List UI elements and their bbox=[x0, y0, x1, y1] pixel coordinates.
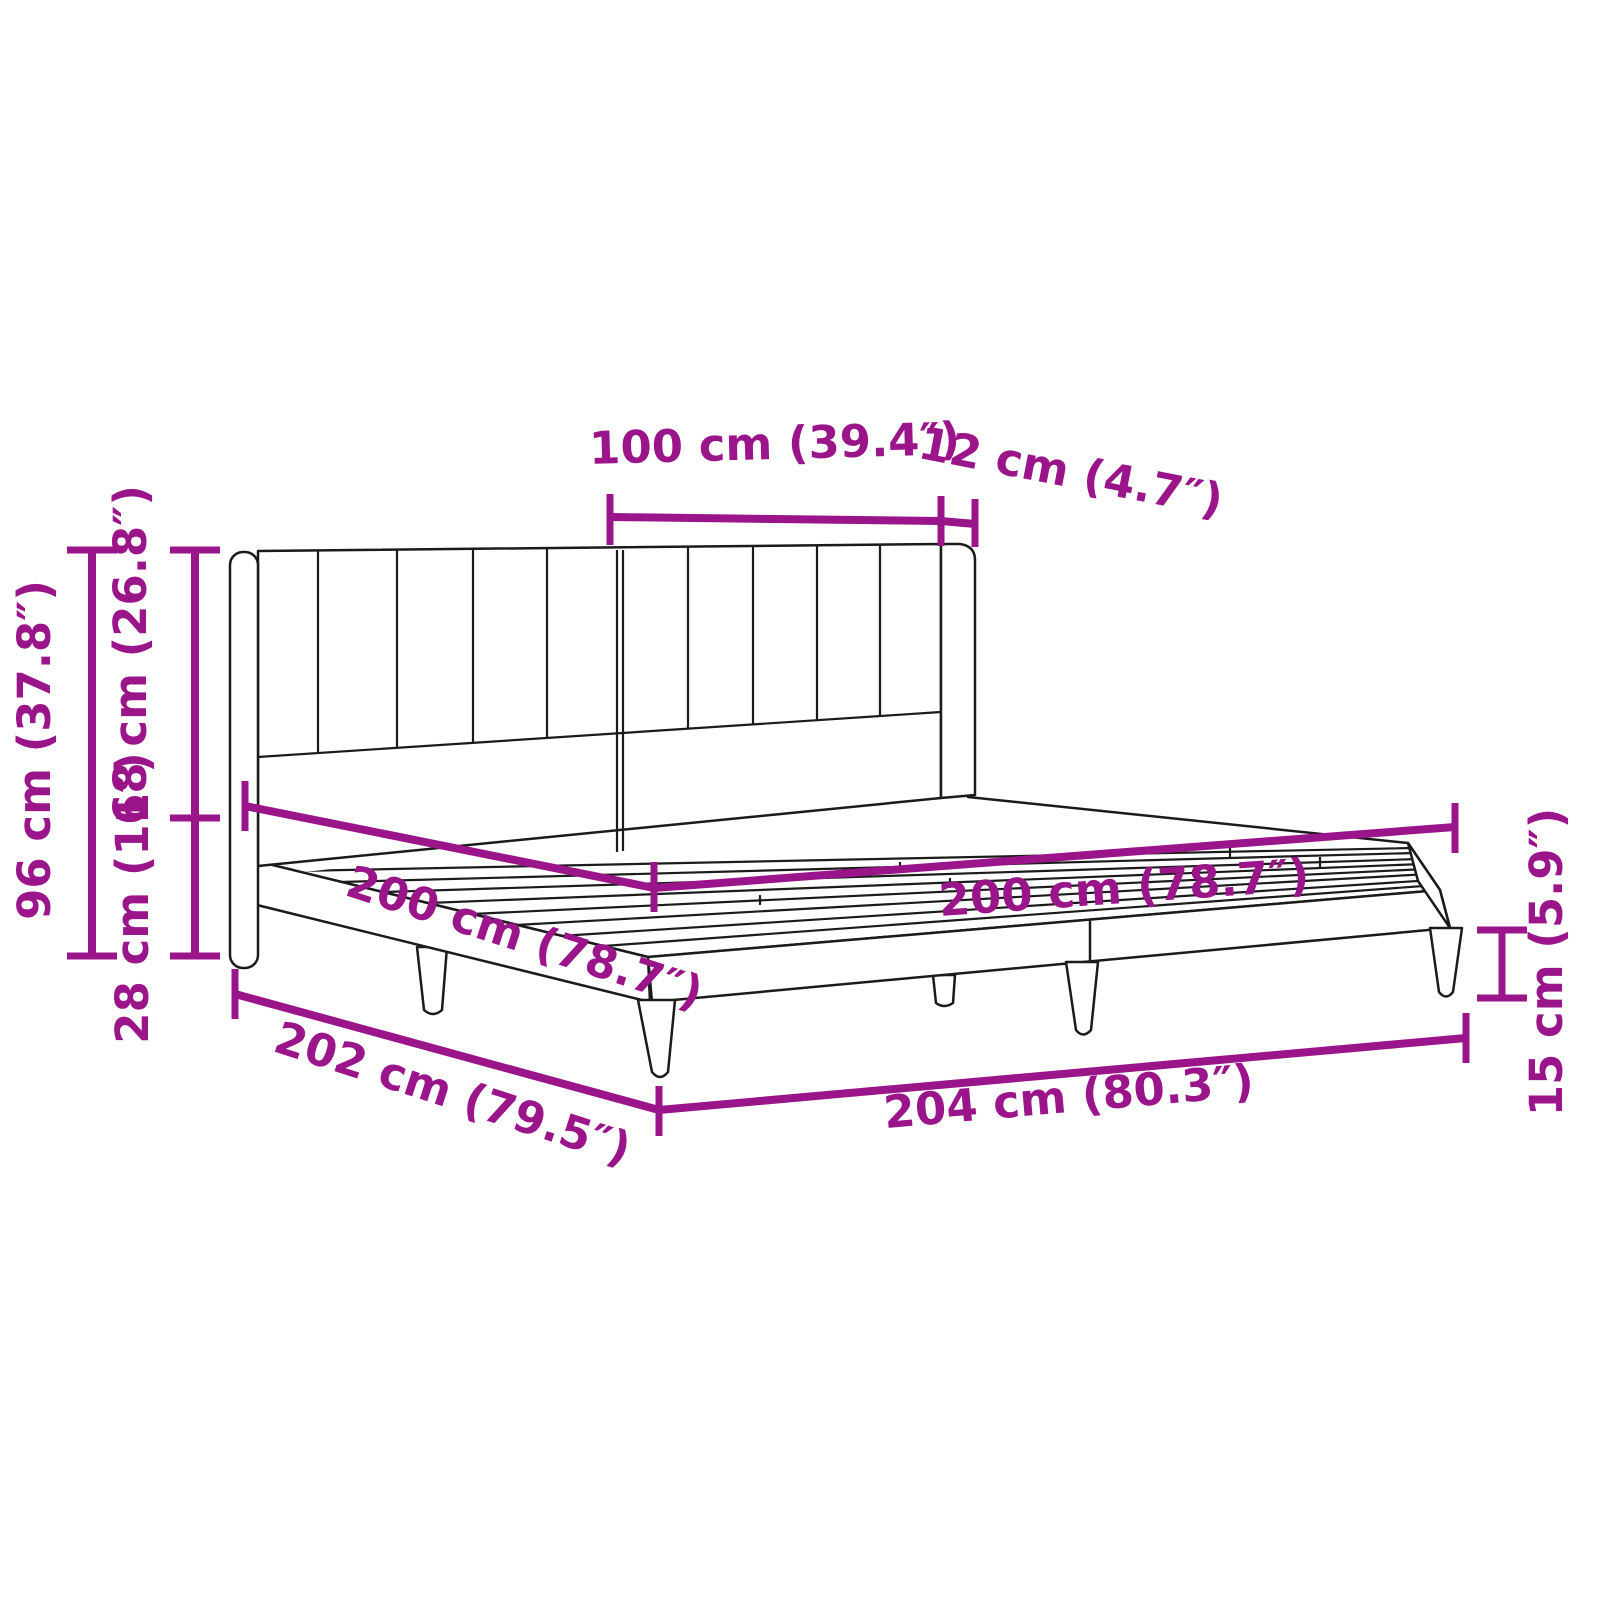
dim-total-height: 96 cm (37.8″) bbox=[8, 550, 117, 956]
bed-frame-dimension-diagram: 100 cm (39.4″) 12 cm (4.7″) 96 cm (37.8″… bbox=[0, 0, 1600, 1600]
front-center-leg bbox=[1066, 962, 1098, 1035]
back-left-leg bbox=[417, 947, 447, 1014]
dim-total-height-label: 96 cm (37.8″) bbox=[8, 580, 61, 920]
dim-leg-height-label: 15 cm (5.9″) bbox=[1520, 808, 1573, 1116]
dim-frame-outer-length-label: 204 cm (80.3″) bbox=[881, 1054, 1255, 1139]
dim-frame-outer-length: 204 cm (80.3″) bbox=[659, 1013, 1466, 1139]
dim-frame-height-label: 28 cm (11″) bbox=[106, 752, 159, 1043]
dim-headboard-panel-width: 100 cm (39.4″) bbox=[588, 412, 960, 546]
dim-headboard-wing-thickness: 12 cm (4.7″) bbox=[914, 416, 1227, 547]
headboard-left-wing bbox=[230, 552, 258, 968]
dim-headboard-and-frame-height: 68 cm (26.8″) 28 cm (11″) bbox=[104, 485, 220, 1044]
dim-headboard-wing-thickness-label: 12 cm (4.7″) bbox=[914, 416, 1227, 527]
dim-frame-outer-width-label: 202 cm (79.5″) bbox=[268, 1011, 637, 1176]
headboard-right-wing bbox=[941, 544, 975, 798]
dim-headboard-panel-width-label: 100 cm (39.4″) bbox=[588, 412, 960, 475]
front-right-leg bbox=[1430, 928, 1462, 997]
diagram-canvas: 100 cm (39.4″) 12 cm (4.7″) 96 cm (37.8″… bbox=[0, 0, 1600, 1600]
dim-frame-outer-width: 202 cm (79.5″) bbox=[235, 969, 659, 1176]
back-center-leg bbox=[933, 975, 955, 1006]
bed-frame-drawing bbox=[230, 544, 1462, 1077]
dim-leg-height: 15 cm (5.9″) bbox=[1477, 808, 1573, 1116]
